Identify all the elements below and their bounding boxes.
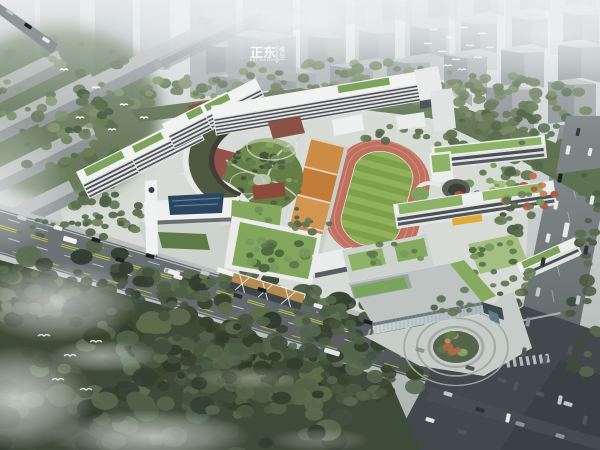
svg-text:模: 模 — [279, 46, 285, 54]
svg-text:型: 型 — [279, 53, 285, 61]
svg-text:EST BUILDING: EST BUILDING — [250, 58, 280, 62]
